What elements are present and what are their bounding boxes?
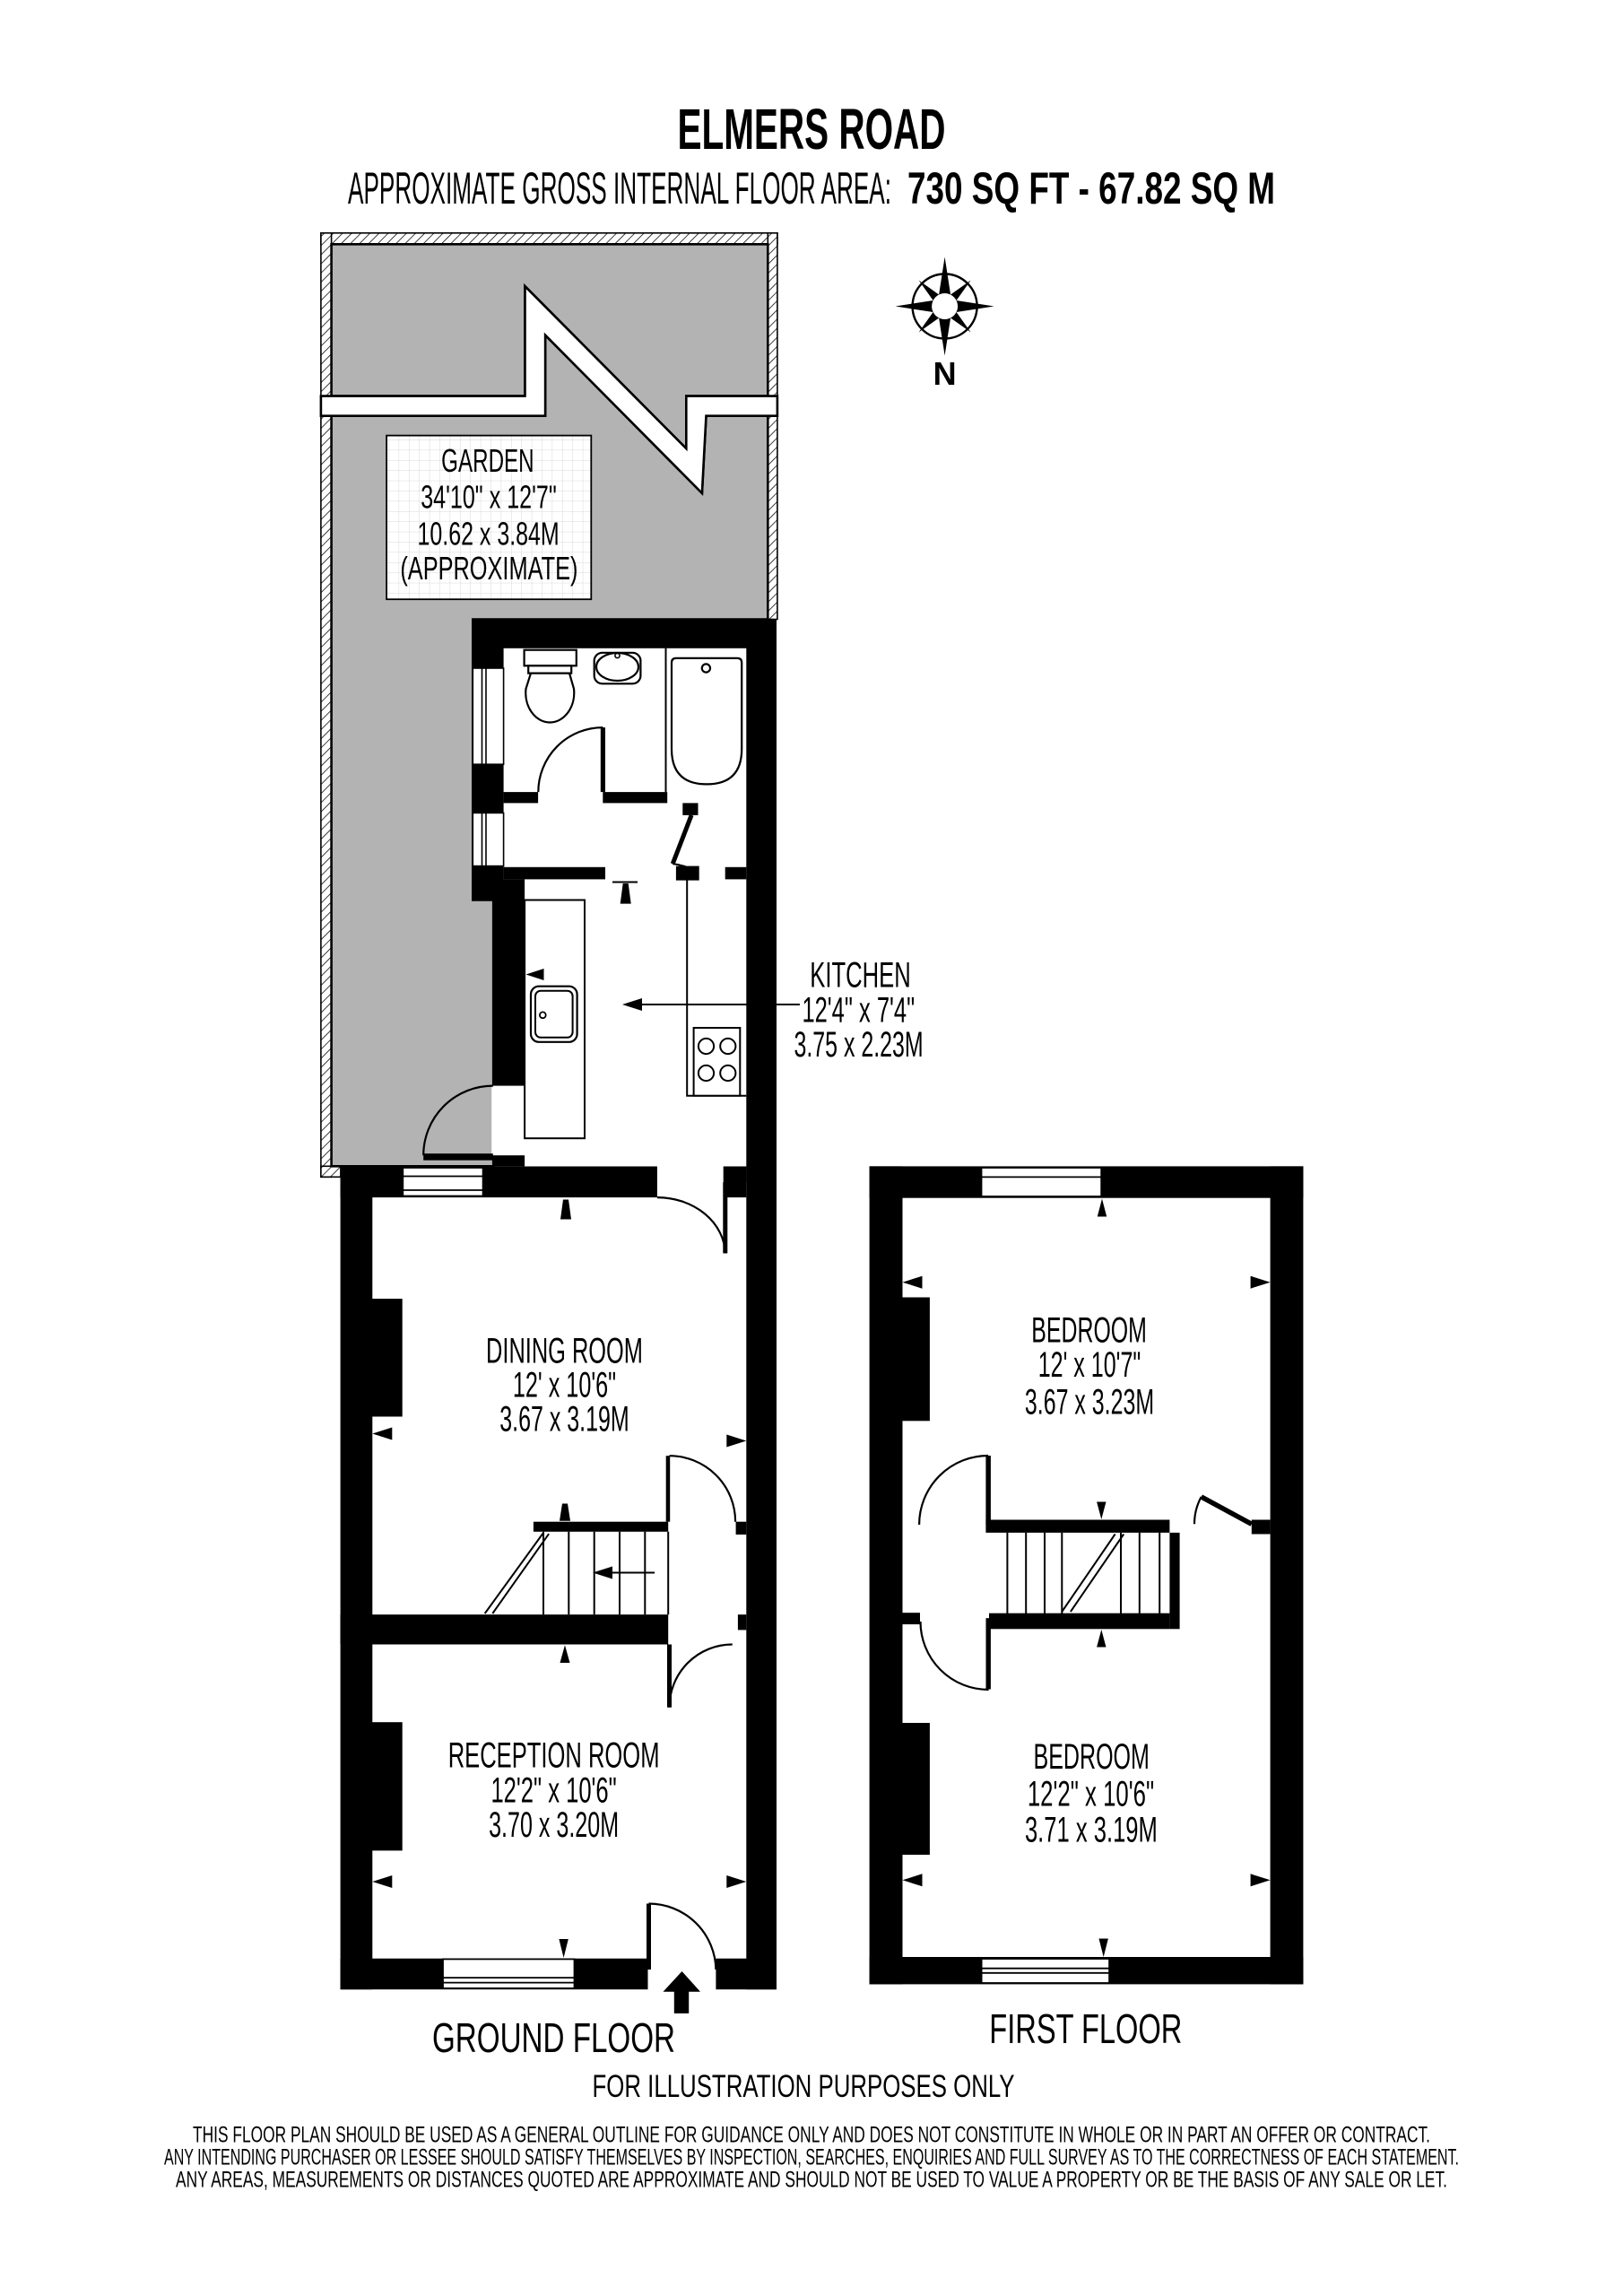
svg-text:3.71 x 3.19M: 3.71 x 3.19M bbox=[1025, 1811, 1158, 1850]
svg-text:12'2" x 10'6": 12'2" x 10'6" bbox=[490, 1770, 616, 1810]
svg-text:FOR ILLUSTRATION PURPOSES ONLY: FOR ILLUSTRATION PURPOSES ONLY bbox=[593, 2069, 1015, 2104]
svg-text:3.70 x 3.20M: 3.70 x 3.20M bbox=[489, 1805, 619, 1845]
svg-text:N: N bbox=[933, 355, 957, 392]
svg-text:BEDROOM: BEDROOM bbox=[1034, 1737, 1150, 1777]
svg-text:RECEPTION ROOM: RECEPTION ROOM bbox=[448, 1736, 660, 1776]
svg-text:FIRST FLOOR: FIRST FLOOR bbox=[989, 2005, 1182, 2052]
svg-text:(APPROXIMATE): (APPROXIMATE) bbox=[400, 550, 577, 587]
svg-text:12' x 10'7": 12' x 10'7" bbox=[1038, 1345, 1141, 1385]
svg-text:THIS FLOOR PLAN SHOULD BE USED: THIS FLOOR PLAN SHOULD BE USED AS A GENE… bbox=[193, 2123, 1430, 2148]
svg-text:ANY INTENDING PURCHASER OR LES: ANY INTENDING PURCHASER OR LESSEE SHOULD… bbox=[164, 2145, 1459, 2170]
svg-text:10.62 x 3.84M: 10.62 x 3.84M bbox=[418, 516, 560, 552]
svg-text:BEDROOM: BEDROOM bbox=[1031, 1310, 1147, 1350]
svg-text:KITCHEN: KITCHEN bbox=[810, 956, 910, 996]
svg-text:APPROXIMATE GROSS INTERNAL FLO: APPROXIMATE GROSS INTERNAL FLOOR AREA: bbox=[348, 163, 891, 213]
svg-text:ELMERS ROAD: ELMERS ROAD bbox=[678, 97, 946, 161]
svg-text:3.67 x 3.23M: 3.67 x 3.23M bbox=[1025, 1382, 1154, 1422]
svg-text:GARDEN: GARDEN bbox=[441, 442, 534, 479]
svg-text:34'10" x 12'7": 34'10" x 12'7" bbox=[421, 479, 557, 516]
svg-text:GROUND FLOOR: GROUND FLOOR bbox=[432, 2014, 675, 2061]
svg-text:12'4" x 7'4": 12'4" x 7'4" bbox=[802, 991, 915, 1031]
svg-text:3.67 x 3.19M: 3.67 x 3.19M bbox=[499, 1400, 629, 1439]
svg-text:12'2" x 10'6": 12'2" x 10'6" bbox=[1028, 1775, 1154, 1814]
svg-text:3.75 x 2.23M: 3.75 x 2.23M bbox=[794, 1025, 924, 1065]
svg-text:730 SQ FT - 67.82 SQ M: 730 SQ FT - 67.82 SQ M bbox=[907, 163, 1275, 213]
svg-text:ANY AREAS, MEASUREMENTS OR DIS: ANY AREAS, MEASUREMENTS OR DISTANCES QUO… bbox=[176, 2168, 1447, 2193]
